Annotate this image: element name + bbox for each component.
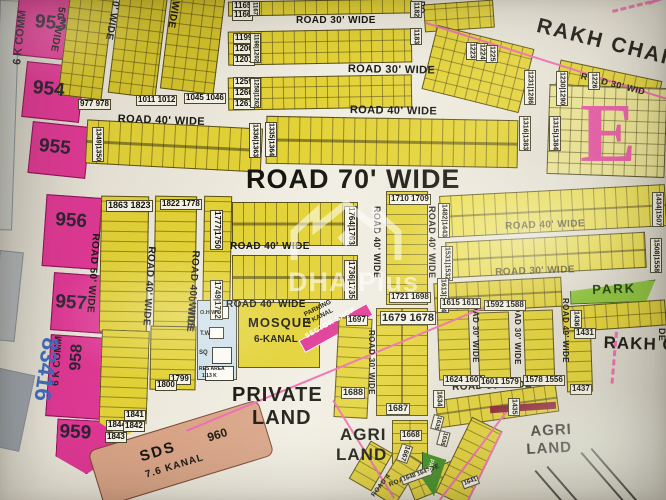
agri-hatch-line [546, 466, 626, 500]
map-edge-gray-2 [0, 250, 24, 342]
plot-block [228, 74, 413, 110]
boundary-dashes-right [610, 332, 618, 384]
overhead-water-tank-box [212, 306, 229, 319]
dha-sector-map-photo: ROAD 30' WIDEROAD 30' WIDEROAD 40' WIDER… [0, 0, 666, 500]
plot-block [445, 232, 647, 278]
road-30-top: ROAD 30' WIDE [296, 15, 376, 26]
road-de-edge: DE [656, 328, 666, 341]
plot-block [386, 191, 428, 305]
sector-e-block [546, 84, 666, 178]
plot-1636: 1636 [436, 430, 450, 448]
plot-1045-1046: 1045 1046 [184, 93, 226, 104]
plot-block [561, 299, 666, 332]
plot-block [439, 184, 666, 238]
plot-block [433, 277, 562, 314]
plot-block [160, 0, 226, 95]
map-edge-gray-3 [0, 368, 35, 452]
agri-hatch-line [534, 470, 614, 500]
res-area-box [205, 366, 234, 381]
plot-block [228, 0, 412, 17]
plot-block [565, 330, 593, 393]
road-30-vert-3: ROAD 30' WIDE [512, 300, 521, 365]
plot-block [99, 196, 149, 333]
plot-block [108, 0, 169, 99]
road-70-main: ROAD 70' WIDE [246, 165, 460, 195]
plot-block [228, 28, 413, 65]
commercial-block-956 [42, 194, 103, 270]
area-agri-right-line1: AGRI [530, 422, 572, 441]
commercial-block-955 [27, 121, 90, 179]
plot-block [98, 329, 150, 439]
area-agri-right-line2: LAND [526, 440, 572, 459]
plot-block [523, 309, 555, 380]
agri-hatch-line [580, 452, 654, 500]
road-40-vert-1: ROAD 40' WIDE [371, 206, 381, 278]
plot-block [423, 0, 495, 32]
plot-block [376, 308, 428, 416]
plot-block [266, 116, 519, 168]
plot-1316-1383: 1316|1383 [519, 116, 531, 151]
plot-block [232, 255, 358, 300]
tubewell-box [209, 327, 224, 339]
plot-1508-1558: 1508|1558 [650, 238, 662, 273]
square-box [212, 347, 232, 364]
plot-block [153, 196, 197, 333]
plot-977-978: 977 978 [78, 99, 111, 110]
commercial-block-958 [45, 334, 107, 420]
plot-block [85, 119, 263, 172]
plot-block [477, 311, 511, 380]
area-agri-left-line1: AGRI [340, 426, 387, 445]
plot-block [149, 326, 196, 391]
plot-block [232, 202, 358, 246]
boundary-dashes-topright-2 [648, 0, 666, 5]
